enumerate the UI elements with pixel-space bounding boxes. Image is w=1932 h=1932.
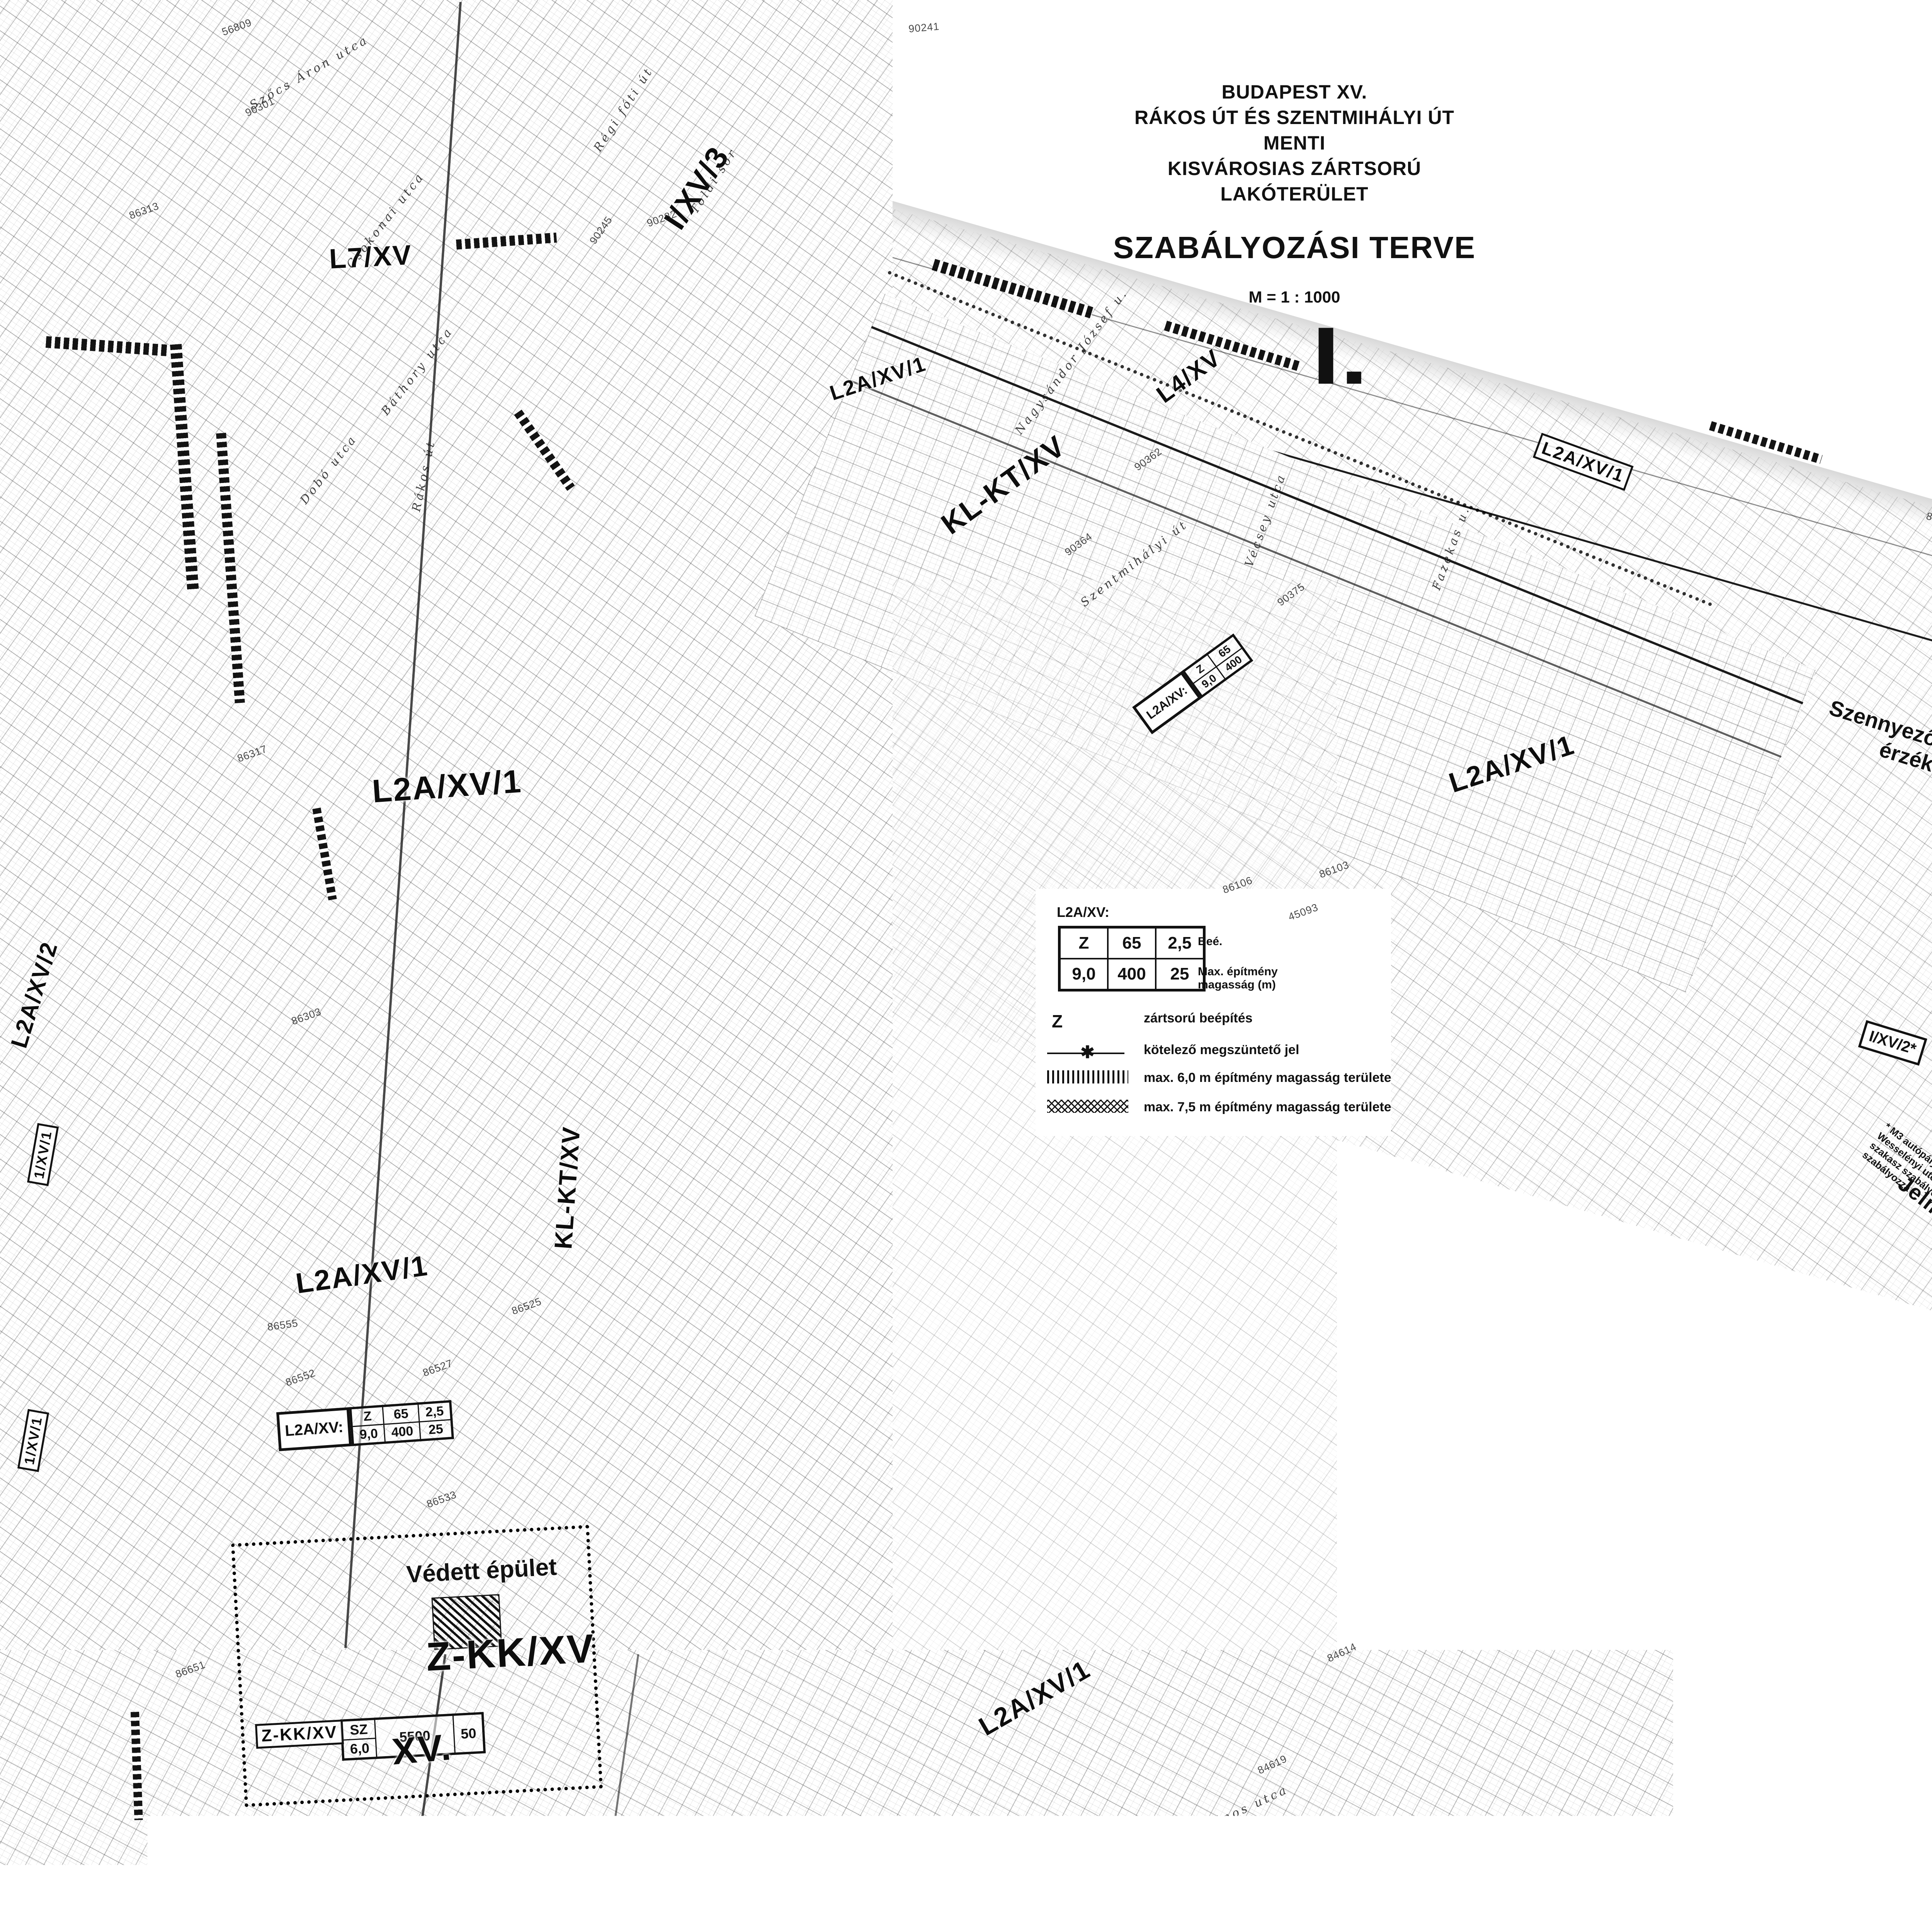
strip-cell: SZ	[341, 1719, 376, 1740]
legend1-cell: 65	[1108, 927, 1156, 959]
parcel-number: 90241	[908, 20, 940, 35]
sheet1-title-line4: KISVÁROSIAS ZÁRTSORÚ	[1101, 156, 1488, 181]
height-75m-hatch-symbol	[1047, 1100, 1128, 1113]
strip-cell: Z	[350, 1406, 384, 1427]
legend1-row-text: max. 7,5 m építmény magasság területe	[1144, 1100, 1391, 1115]
strip-zone-name: L2A/XV:	[276, 1407, 352, 1451]
protected-building-hatch	[432, 1594, 502, 1650]
sheet1-title-line2: RÁKOS ÚT ÉS SZENTMIHÁLYI ÚT	[1101, 105, 1488, 130]
legend1-bottom-caption: Max. építmény magasság (m)	[1198, 965, 1314, 992]
legend1-row-closed: Z zártsorú beépítés	[1047, 1011, 1063, 1034]
legend1-table: Z 65 2,5 9,0 400 25	[1058, 926, 1206, 992]
zone-strip-table-zkk: SZ 5500 50 6,0	[340, 1712, 486, 1761]
demolition-mark-symbol: ✱	[1047, 1053, 1124, 1054]
strip-cell: 65	[383, 1403, 419, 1424]
legend1-cell: Z	[1060, 927, 1108, 959]
sheet1-title-block-text: BUDAPEST XV. RÁKOS ÚT ÉS SZENTMIHÁLYI ÚT…	[1101, 79, 1488, 306]
legend1-row-h75: max. 7,5 m építmény magasság területe	[1047, 1100, 1128, 1123]
scanned-zoning-map-page: BUDAPEST XV. RÁKOS ÚT ÉS SZENTMIHÁLYI ÚT…	[0, 0, 1932, 1932]
strip-cell: 400	[384, 1422, 421, 1443]
strip-cell: 5500	[375, 1715, 455, 1758]
sheet1-title-line5: LAKÓTERÜLET	[1101, 181, 1488, 207]
sheet1-title-line1: BUDAPEST XV.	[1101, 79, 1488, 105]
legend1-row-text: max. 6,0 m építmény magasság területe	[1144, 1070, 1391, 1085]
legend1-top-caption: Beé.	[1198, 935, 1314, 948]
legend1-row-text: kötelező megszüntető jel	[1144, 1043, 1299, 1058]
legend1-cell: 25	[1156, 959, 1204, 990]
sheet1-title-main: SZABÁLYOZÁSI TERVE	[1101, 230, 1488, 265]
strip-cell: 9,0	[352, 1424, 385, 1445]
legend1-cell: 2,5	[1156, 927, 1204, 959]
strip-cell: 25	[419, 1420, 453, 1440]
legend1-cell: 9,0	[1060, 959, 1108, 990]
strip-cell: 2,5	[418, 1401, 452, 1422]
strip-cell: 6,0	[342, 1738, 377, 1760]
legend1-row-text: zártsorú beépítés	[1144, 1011, 1253, 1026]
closed-row-symbol: Z	[1052, 1011, 1063, 1032]
sheet1-scale: M = 1 : 1000	[1101, 288, 1488, 306]
sheet1-numeral: I.	[1312, 309, 1368, 403]
legend1-row-demolition: ✱ kötelező megszüntető jel	[1047, 1043, 1124, 1066]
legend1-row-h6: max. 6,0 m építmény magasság területe	[1047, 1070, 1128, 1094]
strip-cell: 50	[453, 1713, 485, 1754]
height-6m-hatch-symbol	[1047, 1070, 1128, 1083]
legend1-header: L2A/XV:	[1057, 904, 1109, 920]
sheet1-title-line3: MENTI	[1101, 130, 1488, 156]
legend1-cell: 400	[1108, 959, 1156, 990]
legend-sheet1: L2A/XV: Z 65 2,5 9,0 400 25 Beé. Max. ép…	[1036, 889, 1391, 1136]
